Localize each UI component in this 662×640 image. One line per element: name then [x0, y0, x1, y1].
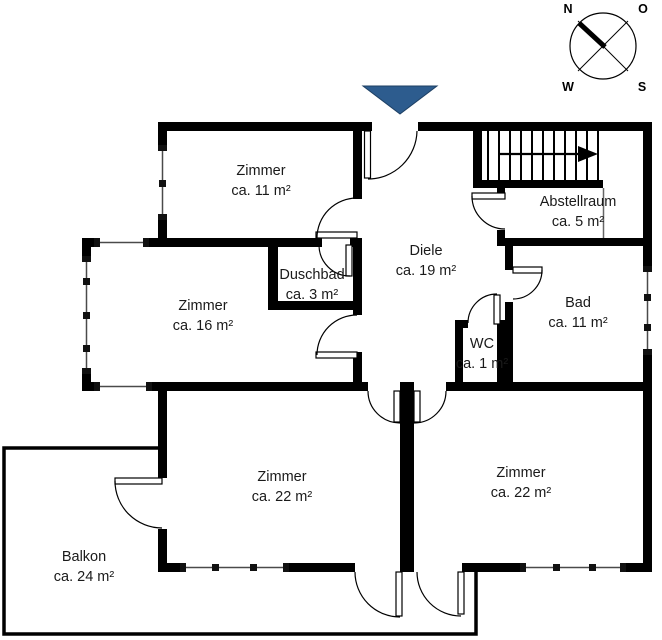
door-arcs: [115, 131, 542, 617]
room-label-balkon: Balkon ca. 24 m²: [54, 547, 114, 587]
room-name: Zimmer: [257, 469, 306, 485]
room-area: ca. 22 m²: [252, 489, 312, 505]
room-area: ca. 22 m²: [491, 485, 551, 501]
room-area: ca. 5 m²: [552, 214, 604, 230]
room-label-abstellraum: Abstellraum ca. 5 m²: [540, 192, 617, 232]
room-area: ca. 3 m²: [286, 287, 338, 303]
room-area: ca. 19 m²: [396, 263, 456, 279]
room-name: Zimmer: [496, 465, 545, 481]
floor-plan: Zimmer ca. 11 m² Zimmer ca. 16 m² Duschb…: [0, 0, 662, 640]
room-area: ca. 1 m²: [456, 356, 508, 372]
room-area: ca. 11 m²: [231, 183, 290, 199]
room-name: WC: [470, 336, 494, 352]
walls: [82, 122, 652, 572]
compass-label-west: W: [562, 81, 574, 93]
room-area: ca. 16 m²: [173, 318, 233, 334]
room-name: Diele: [409, 243, 442, 259]
room-label-bad: Bad ca. 11 m²: [548, 293, 607, 333]
room-label-zimmer11: Zimmer ca. 11 m²: [231, 161, 290, 201]
room-label-zimmer22-left: Zimmer ca. 22 m²: [252, 467, 312, 507]
room-label-zimmer16: Zimmer ca. 16 m²: [173, 296, 233, 336]
entrance-marker-icon: [363, 86, 437, 114]
room-area: ca. 24 m²: [54, 569, 114, 585]
room-label-wc: WC ca. 1 m²: [456, 334, 508, 374]
room-name: Duschbad: [279, 267, 344, 283]
room-name: Balkon: [62, 549, 106, 565]
compass-needle-icon: [579, 23, 605, 47]
room-label-diele: Diele ca. 19 m²: [396, 241, 456, 281]
entrance-door-leaf: [365, 131, 371, 178]
room-name: Abstellraum: [540, 194, 617, 210]
room-label-duschbad: Duschbad ca. 3 m²: [279, 265, 344, 305]
entrance-door-arc: [368, 131, 417, 179]
compass-label-east: O: [638, 3, 648, 15]
compass-label-south: S: [638, 81, 646, 93]
room-name: Bad: [565, 295, 591, 311]
compass-rose: [570, 13, 636, 79]
room-name: Zimmer: [236, 163, 285, 179]
room-name: Zimmer: [178, 298, 227, 314]
room-label-zimmer22-right: Zimmer ca. 22 m²: [491, 463, 551, 503]
room-area: ca. 11 m²: [548, 315, 607, 331]
compass-label-north: N: [563, 3, 572, 15]
